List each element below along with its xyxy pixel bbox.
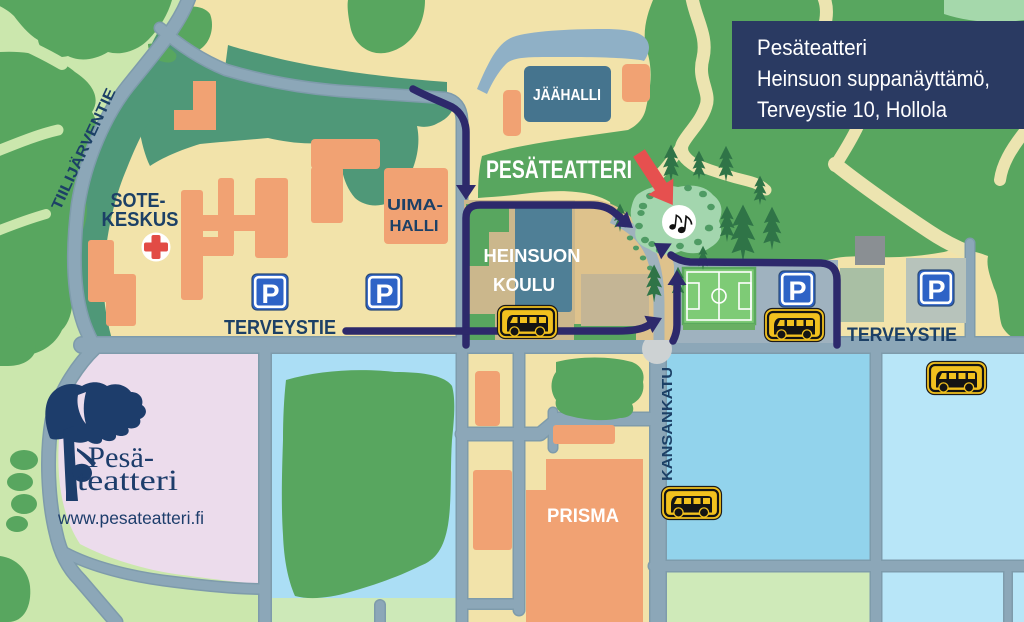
svg-text:TERVEYSTIE: TERVEYSTIE: [847, 325, 957, 346]
svg-text:KANSANKATU: KANSANKATU: [659, 367, 676, 481]
svg-text:KOULU: KOULU: [493, 275, 555, 295]
svg-text:HEINSUON: HEINSUON: [484, 246, 581, 266]
svg-text:JÄÄHALLI: JÄÄHALLI: [533, 86, 601, 104]
svg-text:UIMA-: UIMA-: [387, 197, 443, 214]
svg-text:www.pesateatteri.fi: www.pesateatteri.fi: [57, 508, 204, 528]
svg-text:HALLI: HALLI: [390, 218, 439, 235]
svg-text:KESKUS: KESKUS: [102, 209, 179, 231]
svg-text:teatteri: teatteri: [77, 464, 178, 497]
svg-text:Terveystie 10, Hollola: Terveystie 10, Hollola: [757, 97, 947, 122]
svg-text:TERVEYSTIE: TERVEYSTIE: [224, 317, 336, 339]
svg-text:Pesäteatteri: Pesäteatteri: [757, 35, 867, 60]
svg-text:Heinsuon suppanäyttämö,: Heinsuon suppanäyttämö,: [757, 66, 990, 91]
svg-text:PESÄTEATTERI: PESÄTEATTERI: [486, 156, 632, 184]
svg-text:PRISMA: PRISMA: [547, 506, 619, 527]
